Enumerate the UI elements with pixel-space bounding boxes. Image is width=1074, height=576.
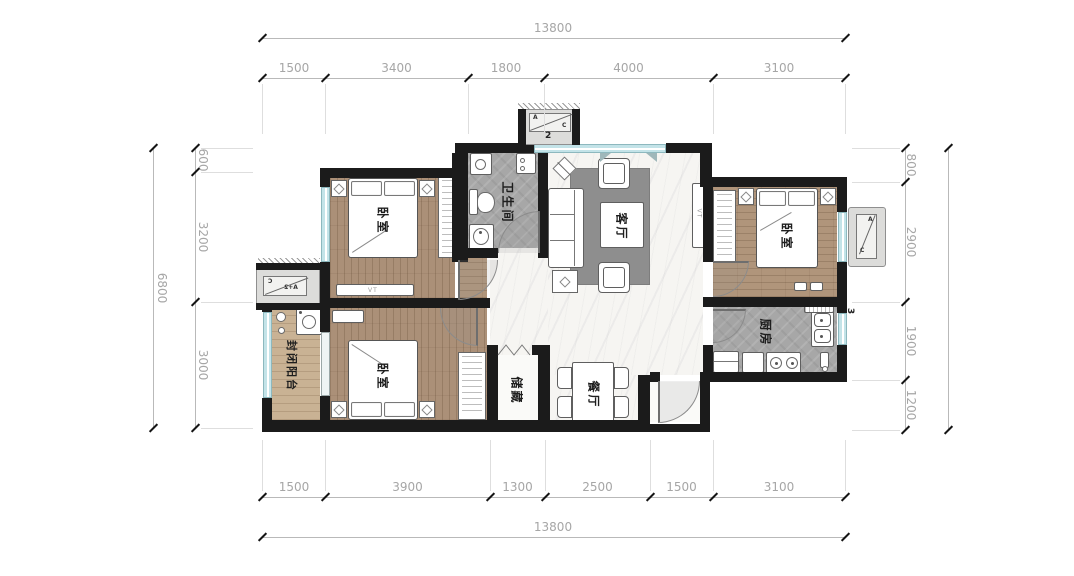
dim-label: 1300 bbox=[490, 480, 545, 494]
living-window bbox=[534, 144, 666, 153]
dim-label: 2900 bbox=[904, 221, 918, 263]
fridge-door-line bbox=[714, 361, 738, 362]
balcony-drain bbox=[278, 327, 285, 334]
wall bbox=[703, 297, 847, 307]
dim-extension-line bbox=[845, 84, 846, 134]
dim-label: 1500 bbox=[650, 480, 713, 494]
dim-tick bbox=[944, 425, 953, 434]
wall bbox=[320, 168, 468, 178]
dim-tick bbox=[841, 532, 850, 541]
floor-plan: VT VT bbox=[0, 0, 1074, 576]
room-label-bedroom-main: 卧室 bbox=[375, 206, 392, 234]
dim-label: 13800 bbox=[523, 520, 583, 534]
dim-extension-line bbox=[262, 84, 263, 134]
dim-label: 4000 bbox=[544, 61, 713, 75]
sink-faucet bbox=[820, 319, 823, 322]
dim-label: 1200 bbox=[904, 384, 918, 426]
wall bbox=[452, 248, 498, 258]
dim-extension-line bbox=[325, 440, 326, 491]
dim-extension-line bbox=[713, 440, 714, 491]
room-label-bedroom-right: 卧室 bbox=[779, 222, 796, 250]
dresser bbox=[332, 310, 364, 323]
kitchen-window bbox=[838, 313, 847, 345]
cabinet-knob bbox=[520, 166, 525, 171]
dim-line-bottom-total bbox=[262, 537, 845, 538]
dim-label: 13800 bbox=[523, 21, 583, 35]
sofa-cushion-line bbox=[550, 214, 574, 215]
dim-extension-line bbox=[201, 428, 253, 429]
dim-label: 1800 bbox=[468, 61, 544, 75]
washer-drum bbox=[302, 315, 316, 329]
ac-platform-top-number: 2 bbox=[545, 131, 551, 141]
corridor-floor bbox=[490, 248, 548, 355]
wall bbox=[538, 345, 550, 432]
dim-extension-line bbox=[325, 84, 326, 134]
bedroom-main-window bbox=[321, 187, 330, 262]
tv-console-bedroom-label: VT bbox=[368, 287, 378, 294]
room-label-balcony: 封闭阳台 bbox=[284, 340, 300, 392]
wall bbox=[256, 263, 320, 270]
burner-center bbox=[775, 362, 778, 365]
dim-extension-line bbox=[650, 440, 651, 491]
dim-label: 3200 bbox=[196, 216, 210, 258]
basin-faucet bbox=[479, 231, 482, 234]
room-label-dining: 餐厅 bbox=[586, 380, 603, 408]
wall bbox=[262, 420, 650, 432]
room-label-kitchen: 厨房 bbox=[758, 318, 775, 346]
pillow bbox=[351, 402, 382, 417]
wall bbox=[700, 372, 845, 382]
bedroom-right-window bbox=[838, 212, 847, 262]
dim-extension-line bbox=[490, 440, 491, 491]
dim-extension-line bbox=[201, 302, 253, 303]
ac-left-text: A+2 bbox=[284, 284, 298, 291]
ac-letter-a: A bbox=[533, 114, 538, 121]
dining-chair bbox=[614, 367, 629, 389]
dim-extension-line bbox=[201, 148, 253, 149]
dim-extension-line bbox=[545, 440, 546, 491]
nightstand bbox=[331, 401, 347, 418]
wall bbox=[703, 345, 713, 372]
armchair-top-seat bbox=[603, 163, 625, 184]
ac-letter-c: C bbox=[562, 122, 566, 129]
kitchen-cabinet bbox=[742, 352, 764, 373]
bed-bench bbox=[794, 282, 807, 291]
wall bbox=[452, 153, 468, 262]
wardrobe-right bbox=[713, 190, 736, 262]
dim-extension-line bbox=[852, 430, 900, 431]
dim-label: 3400 bbox=[325, 61, 468, 75]
bath-cabinet bbox=[516, 153, 536, 174]
room-label-living: 客厅 bbox=[614, 212, 631, 240]
dining-chair bbox=[557, 367, 572, 389]
dim-label: 1500 bbox=[263, 480, 325, 494]
dim-line-left-segments bbox=[195, 148, 196, 428]
dim-label: 3100 bbox=[713, 61, 845, 75]
dim-tick bbox=[191, 423, 200, 432]
dim-extension-line bbox=[544, 84, 545, 134]
dim-extension-line bbox=[201, 172, 253, 173]
dim-extension-line bbox=[845, 440, 846, 491]
pillow bbox=[788, 191, 815, 206]
room-label-bathroom: 卫生间 bbox=[500, 181, 517, 223]
wall bbox=[703, 187, 713, 262]
dim-label: 3900 bbox=[325, 480, 490, 494]
wall bbox=[487, 345, 498, 432]
wall bbox=[700, 143, 712, 187]
wall bbox=[572, 109, 580, 145]
balcony-partition-window bbox=[321, 332, 330, 396]
dim-label: 2500 bbox=[545, 480, 650, 494]
dining-chair bbox=[557, 396, 572, 418]
sofa-cushion-line bbox=[550, 240, 574, 241]
fridge bbox=[713, 351, 739, 373]
toilet-bowl bbox=[477, 192, 495, 213]
pillow bbox=[384, 402, 415, 417]
dim-line-right-outer bbox=[948, 148, 949, 430]
dim-tick bbox=[149, 423, 158, 432]
dim-label: 1500 bbox=[263, 61, 325, 75]
dim-tick bbox=[841, 33, 850, 42]
dim-extension-line bbox=[852, 148, 900, 149]
ac-letter-c: C bbox=[860, 247, 864, 254]
sofa-back-line bbox=[574, 190, 575, 266]
room-label-storage: 储藏 bbox=[509, 376, 526, 404]
sink-faucet bbox=[820, 335, 823, 338]
room-label-bedroom-lower: 卧室 bbox=[375, 362, 392, 390]
dim-extension-line bbox=[852, 380, 900, 381]
washer-dial bbox=[299, 311, 302, 314]
dim-extension-line bbox=[713, 84, 714, 134]
curtain-icon bbox=[600, 153, 611, 162]
dim-label: 3000 bbox=[196, 344, 210, 386]
washer-drum bbox=[475, 159, 486, 170]
dim-label: 3100 bbox=[713, 480, 845, 494]
dim-extension-line bbox=[852, 182, 900, 183]
pillow bbox=[759, 191, 786, 206]
dim-tick bbox=[901, 425, 910, 434]
balcony-drain bbox=[276, 312, 286, 322]
dim-line-left-total bbox=[153, 148, 154, 428]
ac-letter-c: C bbox=[268, 278, 272, 285]
dining-chair bbox=[614, 396, 629, 418]
dim-label: 1900 bbox=[904, 320, 918, 362]
ac-letter-a: A bbox=[868, 216, 873, 223]
wall bbox=[256, 303, 320, 310]
dim-extension-line bbox=[262, 440, 263, 491]
bed-bench bbox=[810, 282, 823, 291]
ac-platform-right-number: 3 bbox=[845, 308, 855, 314]
wall bbox=[320, 262, 330, 332]
dim-extension-line bbox=[468, 84, 469, 134]
nightstand bbox=[738, 188, 754, 205]
wall bbox=[837, 345, 847, 382]
nightstand bbox=[331, 180, 347, 197]
pillow bbox=[384, 181, 415, 196]
wardrobe-lower bbox=[458, 352, 486, 420]
dim-line-top-segments bbox=[262, 78, 845, 79]
balcony-window bbox=[263, 312, 272, 398]
wall bbox=[700, 177, 847, 187]
wall bbox=[320, 298, 490, 308]
burner-center bbox=[791, 362, 794, 365]
tv-console-label: VT bbox=[695, 209, 702, 219]
curtain-icon bbox=[646, 153, 657, 162]
wall bbox=[320, 168, 330, 187]
dim-line-top-total bbox=[262, 38, 845, 39]
sofa-ottoman bbox=[552, 270, 578, 293]
nightstand bbox=[820, 188, 836, 205]
dim-label: 6800 bbox=[155, 266, 169, 310]
cabinet-knob bbox=[520, 158, 525, 163]
wall bbox=[518, 109, 526, 145]
armchair-bottom-seat bbox=[603, 267, 625, 288]
sofa bbox=[548, 188, 584, 268]
storage-bifold-door-icon bbox=[497, 344, 533, 356]
nightstand bbox=[419, 180, 435, 197]
dim-line-bottom-segments bbox=[262, 497, 845, 498]
nightstand bbox=[419, 401, 435, 418]
pillow bbox=[351, 181, 382, 196]
dim-extension-line bbox=[852, 302, 900, 303]
